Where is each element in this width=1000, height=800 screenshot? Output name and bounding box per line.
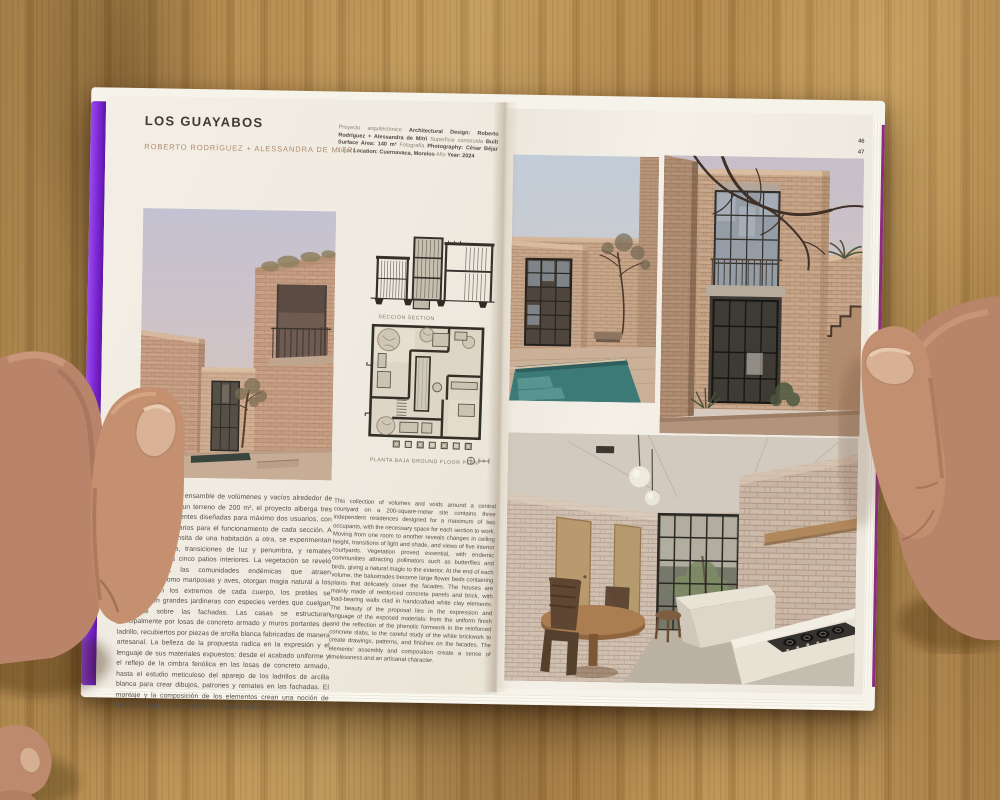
project-authors: ROBERTO RODRÍGUEZ + ALESSANDRA DE MITRI bbox=[144, 142, 356, 155]
body-text-english: This collection of volumes and voids aro… bbox=[328, 497, 496, 667]
credit-label-es: Fotografía bbox=[399, 143, 424, 150]
north-arrow-scale-glyph bbox=[466, 454, 492, 466]
floor-plan-label: PLANTA BAJA GROUND FLOOR PLAN bbox=[370, 457, 479, 467]
page-number-47: 47 bbox=[836, 147, 864, 158]
body-text-spanish: Concebido como un ensamble de volúmenes … bbox=[115, 491, 332, 715]
page-number-46: 46 bbox=[836, 136, 864, 147]
photo-pool-courtyard bbox=[509, 154, 659, 403]
photo-courtyard-exterior bbox=[139, 208, 337, 480]
left-page: LOS GUAYABOS ROBERTO RODRÍGUEZ + ALESSAN… bbox=[96, 95, 507, 694]
project-credits: Proyecto arquitectónico Architectural De… bbox=[337, 124, 498, 162]
page-numbers: 46 47 bbox=[836, 136, 864, 157]
photo-of-open-book-scene: LOS GUAYABOS ROBERTO RODRÍGUEZ + ALESSAN… bbox=[0, 0, 1000, 800]
photo-brick-tower bbox=[659, 155, 864, 436]
open-architecture-book: LOS GUAYABOS ROBERTO RODRÍGUEZ + ALESSAN… bbox=[81, 87, 886, 711]
right-page: 46 47 bbox=[497, 108, 873, 694]
floor-plan-drawing bbox=[361, 321, 491, 455]
credit-label-es: Lugar bbox=[337, 148, 351, 155]
credit-value: Year: 2024 bbox=[447, 153, 474, 160]
project-title: LOS GUAYABOS bbox=[145, 113, 264, 130]
section-drawing bbox=[366, 226, 501, 316]
photo-interior-kitchen bbox=[504, 432, 858, 686]
credit-label-es: Año bbox=[436, 152, 446, 158]
